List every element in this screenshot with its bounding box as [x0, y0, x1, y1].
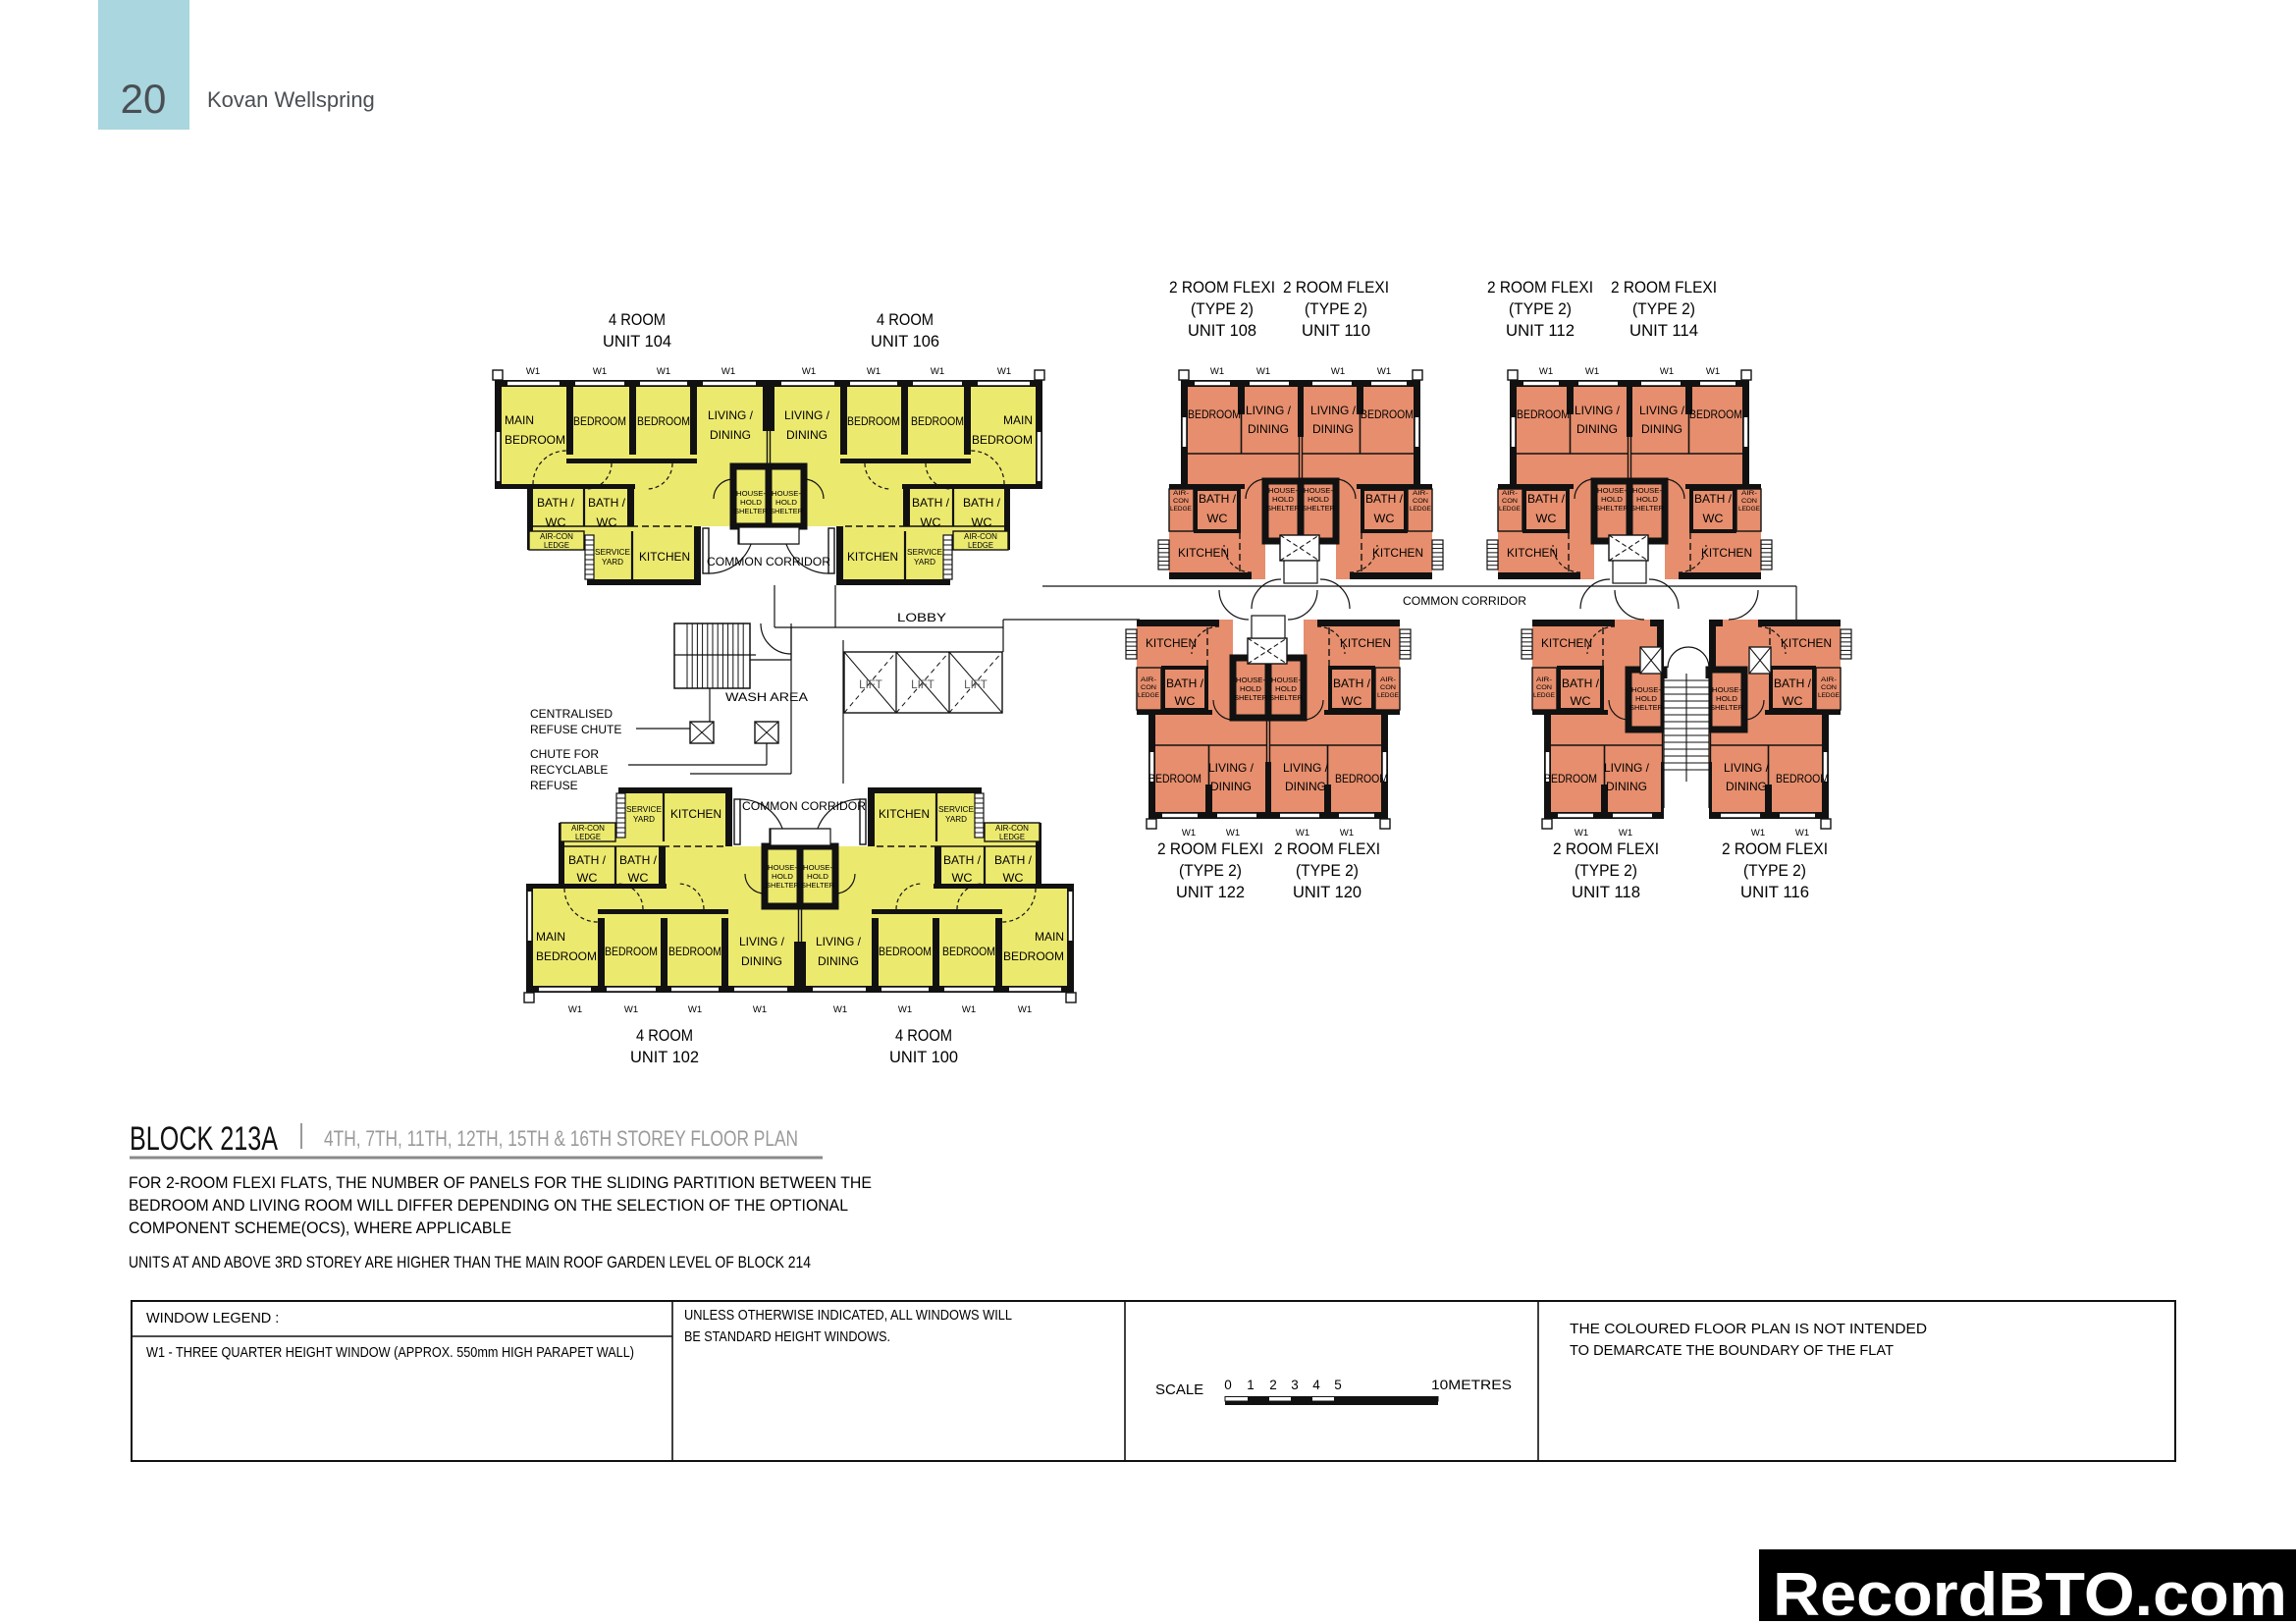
svg-text:BEDROOM: BEDROOM [1689, 407, 1742, 421]
svg-text:SERVICE: SERVICE [626, 805, 663, 814]
svg-text:REFUSE: REFUSE [530, 779, 578, 792]
svg-text:LIFT: LIFT [964, 679, 988, 691]
svg-text:LEDGE: LEDGE [1499, 506, 1521, 513]
svg-text:WC: WC [1342, 694, 1362, 708]
svg-text:W1: W1 [931, 366, 944, 377]
svg-text:BE STANDARD HEIGHT WINDOWS.: BE STANDARD HEIGHT WINDOWS. [684, 1329, 890, 1345]
svg-text:BEDROOM AND LIVING ROOM WILL D: BEDROOM AND LIVING ROOM WILL DIFFER DEPE… [129, 1196, 848, 1215]
svg-text:LIVING /: LIVING / [1310, 404, 1357, 417]
svg-text:KITCHEN: KITCHEN [1507, 546, 1558, 560]
svg-text:10METRES: 10METRES [1431, 1378, 1512, 1392]
svg-text:SHELTER: SHELTER [1266, 504, 1300, 513]
svg-text:W1: W1 [1539, 366, 1553, 377]
svg-text:COMMON CORRIDOR: COMMON CORRIDOR [1403, 594, 1526, 608]
svg-text:LIVING /: LIVING / [1208, 761, 1255, 775]
svg-text:HOLD: HOLD [1272, 495, 1294, 504]
svg-text:COMMON CORRIDOR: COMMON CORRIDOR [707, 555, 830, 568]
svg-text:W1: W1 [721, 366, 735, 377]
svg-text:CON: CON [1141, 684, 1156, 691]
svg-text:UNITS AT AND ABOVE 3RD STOREY: UNITS AT AND ABOVE 3RD STOREY ARE HIGHER… [129, 1253, 811, 1272]
svg-text:KITCHEN: KITCHEN [639, 550, 690, 564]
svg-text:HOUSE-: HOUSE- [803, 863, 833, 872]
svg-text:DINING: DINING [1606, 780, 1647, 793]
svg-text:KITCHEN: KITCHEN [1781, 636, 1832, 650]
svg-text:WC: WC [1003, 871, 1024, 885]
svg-text:BEDROOM: BEDROOM [1188, 407, 1241, 421]
svg-text:3: 3 [1291, 1378, 1299, 1392]
svg-text:KITCHEN: KITCHEN [1372, 546, 1423, 560]
svg-text:WC: WC [972, 515, 992, 529]
svg-text:CON: CON [1821, 684, 1837, 691]
svg-text:(TYPE 2): (TYPE 2) [1179, 862, 1242, 880]
svg-text:SHELTER: SHELTER [1302, 504, 1335, 513]
svg-text:2 ROOM FLEXI: 2 ROOM FLEXI [1611, 279, 1717, 297]
svg-text:W1: W1 [688, 1004, 702, 1015]
svg-text:AIR-CON: AIR-CON [995, 824, 1029, 833]
svg-text:HOUSE-: HOUSE- [1271, 676, 1302, 684]
svg-text:BEDROOM: BEDROOM [668, 945, 721, 958]
svg-text:LIVING /: LIVING / [1246, 404, 1292, 417]
svg-text:CON: CON [1502, 498, 1518, 505]
svg-text:4 ROOM: 4 ROOM [609, 311, 666, 329]
svg-text:BATH /: BATH / [1527, 492, 1566, 506]
svg-text:AIR-: AIR- [1502, 490, 1518, 497]
svg-text:WC: WC [597, 515, 617, 529]
svg-text:W1: W1 [1256, 366, 1270, 377]
svg-text:THE COLOURED FLOOR PLAN IS NOT: THE COLOURED FLOOR PLAN IS NOT INTENDED [1570, 1322, 1927, 1337]
svg-text:(TYPE 2): (TYPE 2) [1743, 862, 1806, 880]
svg-text:UNIT 100: UNIT 100 [889, 1049, 958, 1066]
svg-text:2 ROOM FLEXI: 2 ROOM FLEXI [1274, 840, 1380, 858]
svg-text:(TYPE 2): (TYPE 2) [1191, 300, 1254, 318]
svg-text:LEDGE: LEDGE [999, 833, 1025, 841]
svg-text:REFUSE CHUTE: REFUSE CHUTE [530, 723, 621, 736]
svg-text:W1: W1 [1340, 828, 1354, 839]
svg-text:BEDROOM: BEDROOM [1544, 772, 1597, 785]
svg-text:WC: WC [546, 515, 566, 529]
svg-text:SERVICE: SERVICE [938, 805, 975, 814]
svg-text:AIR-: AIR- [1413, 490, 1428, 497]
svg-text:HOLD: HOLD [740, 498, 762, 507]
svg-text:BATH /: BATH / [588, 496, 626, 510]
svg-text:CON: CON [1741, 498, 1757, 505]
svg-text:MAIN: MAIN [1003, 413, 1033, 427]
svg-text:AIR-: AIR- [1173, 490, 1189, 497]
svg-text:DINING: DINING [1248, 422, 1289, 436]
svg-text:DINING: DINING [786, 428, 828, 442]
svg-text:RecordBTO.com: RecordBTO.com [1773, 1561, 2287, 1624]
svg-text:W1: W1 [833, 1004, 847, 1015]
svg-text:BATH /: BATH / [537, 496, 575, 510]
svg-text:RECYCLABLE: RECYCLABLE [530, 763, 608, 777]
svg-text:WC: WC [628, 871, 649, 885]
svg-text:W1: W1 [1619, 828, 1632, 839]
svg-text:W1: W1 [1018, 1004, 1032, 1015]
svg-text:2 ROOM FLEXI: 2 ROOM FLEXI [1553, 840, 1659, 858]
svg-text:LIFT: LIFT [859, 679, 882, 691]
svg-text:(TYPE 2): (TYPE 2) [1632, 300, 1695, 318]
svg-text:W1: W1 [1331, 366, 1345, 377]
svg-text:2 ROOM FLEXI: 2 ROOM FLEXI [1157, 840, 1263, 858]
svg-text:COMMON CORRIDOR: COMMON CORRIDOR [742, 799, 866, 813]
svg-text:0: 0 [1224, 1378, 1232, 1392]
svg-text:HOUSE-: HOUSE- [772, 489, 802, 498]
svg-text:2 ROOM FLEXI: 2 ROOM FLEXI [1722, 840, 1828, 858]
svg-text:BATH /: BATH / [943, 853, 982, 867]
svg-text:CON: CON [1536, 684, 1552, 691]
svg-text:KITCHEN: KITCHEN [1541, 636, 1592, 650]
svg-text:UNIT 108: UNIT 108 [1188, 322, 1256, 340]
svg-text:BATH /: BATH / [1694, 492, 1733, 506]
svg-text:HOUSE-: HOUSE- [768, 863, 798, 872]
svg-text:BEDROOM: BEDROOM [879, 945, 932, 958]
svg-text:W1 - THREE QUARTER HEIGHT WIN: W1 - THREE QUARTER HEIGHT WINDOW (APPROX… [146, 1345, 634, 1361]
svg-text:BEDROOM: BEDROOM [911, 414, 964, 428]
svg-text:BATH /: BATH / [1199, 492, 1237, 506]
svg-text:W1: W1 [1296, 828, 1309, 839]
svg-text:SHELTER: SHELTER [1710, 703, 1743, 712]
svg-text:KITCHEN: KITCHEN [847, 550, 898, 564]
svg-text:BEDROOM: BEDROOM [1517, 407, 1570, 421]
svg-text:HOLD: HOLD [772, 872, 793, 881]
svg-text:BATH /: BATH / [619, 853, 658, 867]
svg-text:SHELTER: SHELTER [1630, 504, 1664, 513]
svg-text:LEDGE: LEDGE [544, 541, 569, 550]
svg-text:HOUSE-: HOUSE- [1236, 676, 1266, 684]
svg-text:W1: W1 [593, 366, 607, 377]
svg-text:HOUSE-: HOUSE- [1712, 685, 1742, 694]
svg-text:YARD: YARD [633, 815, 655, 824]
svg-text:W1: W1 [1706, 366, 1720, 377]
svg-text:4TH, 7TH, 11TH, 12TH, 15TH &: 4TH, 7TH, 11TH, 12TH, 15TH & 16TH STOREY… [324, 1126, 798, 1151]
svg-text:HOLD: HOLD [1636, 495, 1658, 504]
svg-text:HOUSE-: HOUSE- [1304, 486, 1334, 495]
svg-text:LIFT: LIFT [911, 679, 934, 691]
svg-text:BEDROOM: BEDROOM [637, 414, 690, 428]
svg-text:LIVING /: LIVING / [1724, 761, 1770, 775]
svg-text:UNLESS OTHERWISE INDICATED, AL: UNLESS OTHERWISE INDICATED, ALL WINDOWS … [684, 1308, 1012, 1324]
svg-text:HOLD: HOLD [1275, 684, 1297, 693]
svg-text:AIR-: AIR- [1380, 677, 1396, 683]
svg-text:AIR-: AIR- [1141, 677, 1156, 683]
svg-text:W1: W1 [526, 366, 540, 377]
svg-text:WC: WC [921, 515, 941, 529]
svg-text:SCALE: SCALE [1155, 1381, 1203, 1398]
svg-text:HOLD: HOLD [1716, 694, 1737, 703]
svg-text:BATH /: BATH / [1166, 677, 1204, 690]
svg-text:CHUTE FOR: CHUTE FOR [530, 747, 599, 761]
svg-text:WASH AREA: WASH AREA [725, 690, 808, 704]
svg-text:BEDROOM: BEDROOM [1776, 772, 1829, 785]
svg-text:COMPONENT SCHEME(OCS), WHERE A: COMPONENT SCHEME(OCS), WHERE APPLICABLE [129, 1218, 511, 1237]
svg-text:AIR-: AIR- [1741, 490, 1757, 497]
svg-text:YARD: YARD [602, 558, 623, 567]
svg-text:UNIT 102: UNIT 102 [630, 1049, 699, 1066]
svg-text:UNIT 116: UNIT 116 [1740, 884, 1809, 901]
svg-text:W1: W1 [753, 1004, 767, 1015]
svg-text:KITCHEN: KITCHEN [879, 807, 930, 821]
svg-text:BEDROOM: BEDROOM [505, 433, 565, 447]
svg-text:BATH /: BATH / [1562, 677, 1600, 690]
svg-text:CENTRALISED: CENTRALISED [530, 707, 613, 721]
svg-text:W1: W1 [898, 1004, 912, 1015]
svg-text:BATH /: BATH / [963, 496, 1001, 510]
svg-text:DINING: DINING [1210, 780, 1252, 793]
svg-text:2 ROOM FLEXI: 2 ROOM FLEXI [1169, 279, 1275, 297]
svg-text:HOLD: HOLD [1308, 495, 1329, 504]
svg-text:SHELTER: SHELTER [734, 507, 768, 515]
svg-text:DINING: DINING [741, 954, 782, 968]
svg-text:LIVING /: LIVING / [1604, 761, 1650, 775]
svg-text:W1: W1 [962, 1004, 976, 1015]
svg-text:SERVICE: SERVICE [907, 548, 943, 557]
svg-text:W1: W1 [1182, 828, 1196, 839]
svg-text:LEDGE: LEDGE [1818, 692, 1840, 699]
svg-text:UNIT 120: UNIT 120 [1293, 884, 1362, 901]
svg-text:TO DEMARCATE THE BOUNDARY OF T: TO DEMARCATE THE BOUNDARY OF THE FLAT [1570, 1343, 1894, 1359]
svg-text:BEDROOM: BEDROOM [1335, 772, 1388, 785]
svg-text:W1: W1 [1795, 828, 1809, 839]
svg-text:DINING: DINING [1641, 422, 1682, 436]
svg-text:BATH /: BATH / [1365, 492, 1404, 506]
svg-text:DINING: DINING [1726, 780, 1767, 793]
svg-text:KITCHEN: KITCHEN [670, 807, 721, 821]
svg-text:W1: W1 [1226, 828, 1240, 839]
svg-text:SHELTER: SHELTER [1234, 693, 1267, 702]
svg-text:UNIT 110: UNIT 110 [1302, 322, 1370, 340]
svg-text:2: 2 [1269, 1378, 1277, 1392]
svg-text:BATH /: BATH / [1774, 677, 1812, 690]
svg-text:BEDROOM: BEDROOM [942, 945, 995, 958]
svg-text:W1: W1 [867, 366, 881, 377]
svg-text:HOUSE-: HOUSE- [1632, 486, 1663, 495]
svg-text:BEDROOM: BEDROOM [605, 945, 658, 958]
svg-text:W1: W1 [657, 366, 670, 377]
svg-text:HOUSE-: HOUSE- [1631, 685, 1662, 694]
svg-text:(TYPE 2): (TYPE 2) [1305, 300, 1367, 318]
svg-text:LEDGE: LEDGE [1138, 692, 1159, 699]
svg-text:HOUSE-: HOUSE- [736, 489, 767, 498]
svg-text:LIVING /: LIVING / [784, 408, 830, 422]
svg-text:WC: WC [1374, 512, 1395, 525]
svg-text:HOUSE-: HOUSE- [1597, 486, 1628, 495]
svg-text:DINING: DINING [1285, 780, 1326, 793]
svg-text:W1: W1 [568, 1004, 582, 1015]
svg-text:HOLD: HOLD [1635, 694, 1657, 703]
svg-text:YARD: YARD [914, 558, 935, 567]
svg-text:BEDROOM: BEDROOM [1361, 407, 1414, 421]
svg-text:HOLD: HOLD [807, 872, 828, 881]
svg-text:FOR 2-ROOM FLEXI FLATS, THE NU: FOR 2-ROOM FLEXI FLATS, THE NUMBER OF PA… [129, 1173, 872, 1192]
svg-text:(TYPE 2): (TYPE 2) [1509, 300, 1572, 318]
svg-text:BATH /: BATH / [994, 853, 1033, 867]
svg-text:Kovan Wellspring: Kovan Wellspring [207, 87, 375, 112]
svg-text:BEDROOM: BEDROOM [573, 414, 626, 428]
svg-text:W1: W1 [1751, 828, 1765, 839]
svg-text:SHELTER: SHELTER [1595, 504, 1629, 513]
svg-text:AIR-CON: AIR-CON [571, 824, 605, 833]
svg-text:W1: W1 [997, 366, 1011, 377]
svg-text:AIR-CON: AIR-CON [540, 532, 573, 541]
svg-text:W1: W1 [1210, 366, 1224, 377]
svg-text:KITCHEN: KITCHEN [1178, 546, 1229, 560]
svg-text:LEDGE: LEDGE [575, 833, 601, 841]
svg-text:AIR-: AIR- [1536, 677, 1552, 683]
svg-text:4 ROOM: 4 ROOM [636, 1027, 693, 1045]
svg-text:DINING: DINING [1576, 422, 1618, 436]
svg-text:MAIN: MAIN [1035, 930, 1064, 944]
svg-text:AIR-: AIR- [1821, 677, 1837, 683]
svg-text:KITCHEN: KITCHEN [1146, 636, 1197, 650]
svg-text:MAIN: MAIN [536, 930, 565, 944]
svg-text:W1: W1 [802, 366, 816, 377]
svg-text:KITCHEN: KITCHEN [1701, 546, 1752, 560]
svg-text:LEDGE: LEDGE [1377, 692, 1399, 699]
svg-text:20: 20 [121, 76, 167, 122]
svg-text:4 ROOM: 4 ROOM [895, 1027, 952, 1045]
svg-text:UNIT 118: UNIT 118 [1572, 884, 1640, 901]
svg-text:UNIT 114: UNIT 114 [1629, 322, 1698, 340]
svg-text:BEDROOM: BEDROOM [847, 414, 900, 428]
svg-text:UNIT 112: UNIT 112 [1506, 322, 1575, 340]
svg-text:WC: WC [1175, 694, 1196, 708]
svg-text:SHELTER: SHELTER [770, 507, 803, 515]
svg-text:HOUSE-: HOUSE- [1268, 486, 1299, 495]
svg-text:SHELTER: SHELTER [1269, 693, 1303, 702]
svg-text:W1: W1 [1575, 828, 1588, 839]
svg-text:YARD: YARD [945, 815, 967, 824]
svg-text:LIVING /: LIVING / [816, 935, 862, 948]
svg-text:BATH /: BATH / [912, 496, 950, 510]
svg-text:SHELTER: SHELTER [766, 881, 799, 890]
svg-text:MAIN: MAIN [505, 413, 534, 427]
svg-text:LEDGE: LEDGE [1170, 506, 1192, 513]
svg-text:LIVING /: LIVING / [1639, 404, 1685, 417]
svg-text:LEDGE: LEDGE [968, 541, 993, 550]
svg-text:DINING: DINING [1312, 422, 1354, 436]
svg-text:DINING: DINING [710, 428, 751, 442]
svg-text:4 ROOM: 4 ROOM [877, 311, 934, 329]
svg-text:(TYPE 2): (TYPE 2) [1296, 862, 1359, 880]
svg-text:SERVICE: SERVICE [595, 548, 631, 557]
svg-text:CON: CON [1413, 498, 1428, 505]
svg-text:2 ROOM FLEXI: 2 ROOM FLEXI [1283, 279, 1389, 297]
svg-text:WC: WC [1536, 512, 1557, 525]
svg-text:HOLD: HOLD [1240, 684, 1261, 693]
svg-text:BATH /: BATH / [1333, 677, 1371, 690]
svg-text:(TYPE 2): (TYPE 2) [1575, 862, 1637, 880]
svg-text:UNIT 104: UNIT 104 [603, 333, 671, 351]
svg-text:4: 4 [1312, 1378, 1320, 1392]
svg-text:SHELTER: SHELTER [1629, 703, 1663, 712]
svg-text:LOBBY: LOBBY [897, 611, 946, 624]
svg-text:W1: W1 [1585, 366, 1599, 377]
svg-text:UNIT 122: UNIT 122 [1176, 884, 1245, 901]
svg-text:LIVING /: LIVING / [1575, 404, 1621, 417]
svg-text:LIVING /: LIVING / [708, 408, 754, 422]
svg-text:W1: W1 [1377, 366, 1391, 377]
svg-text:WC: WC [1783, 694, 1803, 708]
svg-text:BEDROOM: BEDROOM [1003, 949, 1064, 963]
svg-text:CON: CON [1173, 498, 1189, 505]
svg-text:WINDOW LEGEND :: WINDOW LEGEND : [146, 1311, 279, 1326]
svg-text:BEDROOM: BEDROOM [972, 433, 1033, 447]
svg-text:HOLD: HOLD [775, 498, 797, 507]
svg-text:BLOCK 213A: BLOCK 213A [130, 1120, 278, 1158]
svg-text:LEDGE: LEDGE [1533, 692, 1555, 699]
svg-text:LEDGE: LEDGE [1738, 506, 1760, 513]
svg-text:KITCHEN: KITCHEN [1340, 636, 1391, 650]
svg-text:W1: W1 [624, 1004, 638, 1015]
svg-text:2 ROOM FLEXI: 2 ROOM FLEXI [1487, 279, 1593, 297]
svg-text:5: 5 [1334, 1378, 1342, 1392]
svg-text:WC: WC [577, 871, 598, 885]
svg-text:SHELTER: SHELTER [801, 881, 834, 890]
svg-text:DINING: DINING [818, 954, 859, 968]
svg-text:1: 1 [1247, 1378, 1255, 1392]
svg-text:WC: WC [952, 871, 973, 885]
svg-text:LIVING /: LIVING / [739, 935, 785, 948]
svg-text:BATH /: BATH / [568, 853, 607, 867]
svg-text:BEDROOM: BEDROOM [536, 949, 597, 963]
svg-text:WC: WC [1207, 512, 1228, 525]
svg-text:HOLD: HOLD [1601, 495, 1623, 504]
svg-text:UNIT 106: UNIT 106 [871, 333, 939, 351]
svg-text:CON: CON [1380, 684, 1396, 691]
svg-text:WC: WC [1703, 512, 1724, 525]
svg-text:LIVING /: LIVING / [1283, 761, 1329, 775]
svg-text:LEDGE: LEDGE [1410, 506, 1431, 513]
svg-text:AIR-CON: AIR-CON [964, 532, 997, 541]
svg-text:W1: W1 [1660, 366, 1674, 377]
svg-text:WC: WC [1571, 694, 1591, 708]
svg-text:BEDROOM: BEDROOM [1148, 772, 1201, 785]
